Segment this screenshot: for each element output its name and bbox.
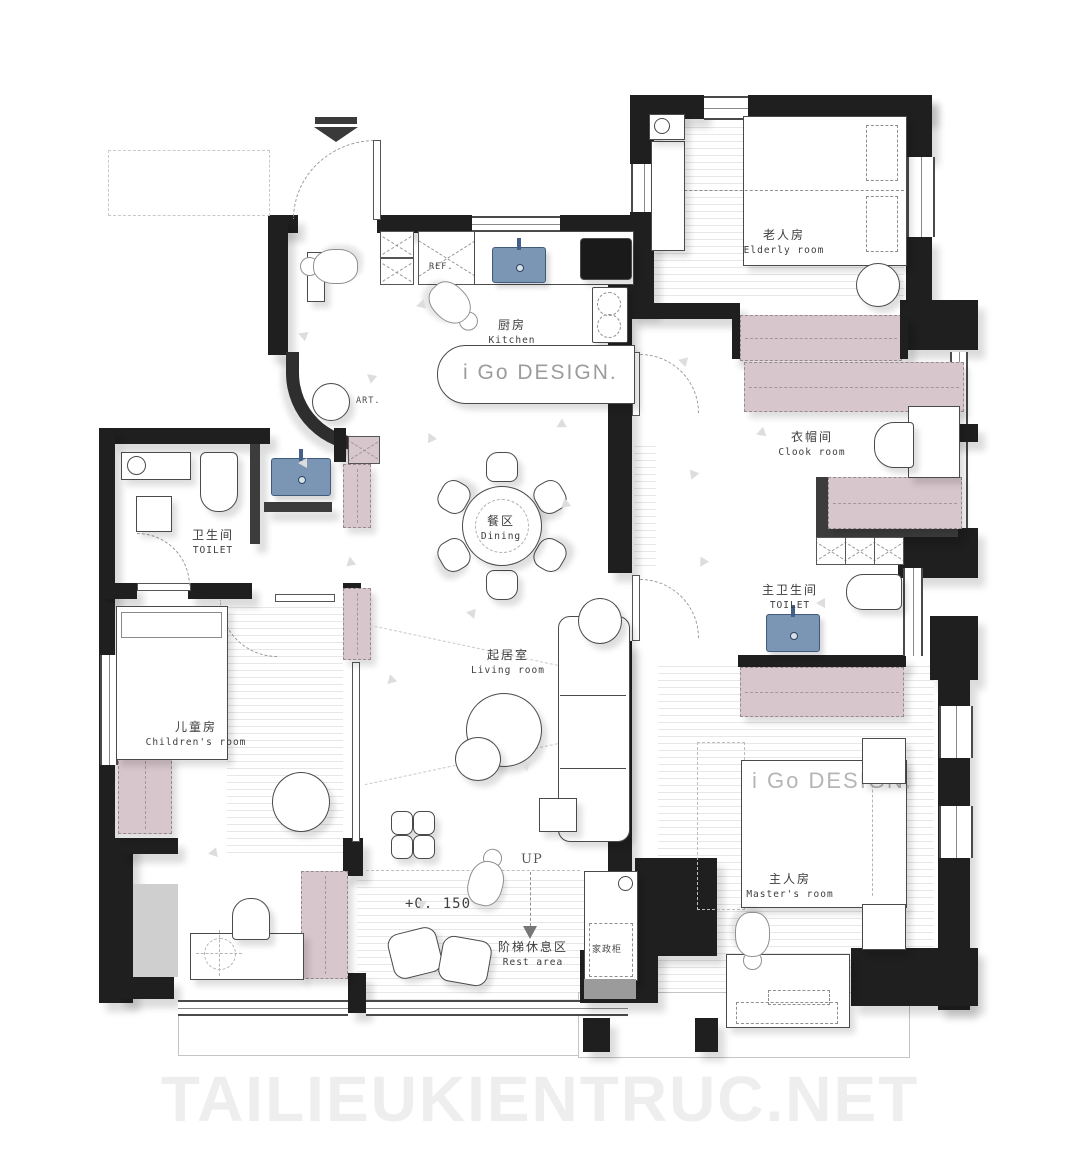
wall: [268, 215, 288, 355]
stove: [580, 238, 632, 280]
wall: [188, 583, 252, 599]
pouf: [413, 811, 435, 835]
kitchen-sink: [492, 247, 546, 283]
room-label-dining-en: Dining: [481, 531, 521, 542]
laundry-basket: [874, 537, 904, 565]
site-watermark: TAILIEUKIENTRUC.NET: [0, 1062, 1080, 1136]
room-label-dining: 餐区 Dining: [481, 512, 521, 542]
storage-nook: [133, 884, 178, 977]
room-label-living-en: Living room: [471, 665, 545, 676]
room-label-kitchen: 厨房 Kitchen: [488, 316, 535, 346]
room-label-elderly: 老人房 Elderly room: [744, 226, 825, 256]
room-label-kitchen-en: Kitchen: [488, 335, 535, 346]
wall: [738, 655, 906, 667]
cabinet: [343, 464, 371, 528]
wall: [348, 973, 366, 1013]
wall: [264, 502, 332, 512]
dresser-chair: [874, 422, 914, 468]
entry-arrow-bar: [315, 117, 357, 124]
beanbag-chair: [272, 772, 330, 832]
window: [472, 216, 560, 232]
room-label-kitchen-zh: 厨房: [488, 316, 535, 333]
wall: [906, 95, 932, 157]
door-swing-arc: [640, 579, 699, 638]
step: [584, 979, 636, 999]
wall: [583, 1018, 610, 1052]
laundry-basket: [816, 537, 846, 565]
room-label-master-toilet: 主卫生间 TOILET: [762, 581, 818, 611]
dining-chair: [486, 452, 518, 482]
door-leaf: [632, 575, 640, 641]
floor-mark: [519, 759, 531, 771]
floor-cushion: [436, 934, 493, 988]
room-label-living: 起居室 Living room: [471, 646, 545, 676]
desk-drawer: [768, 990, 830, 1005]
window: [178, 1000, 348, 1016]
room-label-master-toilet-en: TOILET: [762, 600, 818, 611]
door-swing-arc: [293, 140, 376, 219]
pouf: [391, 835, 413, 859]
up-label: UP: [521, 852, 543, 867]
floor-mark: [297, 329, 309, 341]
floor-mark: [345, 556, 356, 567]
floor-mark: [755, 427, 767, 439]
nightstand: [862, 738, 906, 784]
wall: [906, 237, 932, 307]
pouf: [413, 835, 435, 859]
desk-chair: [232, 898, 270, 940]
room-label-cloak-zh: 衣帽间: [778, 428, 845, 445]
wall: [99, 583, 137, 599]
bed-center-line: [654, 190, 904, 191]
room-label-master-zh: 主人房: [746, 870, 833, 887]
window: [939, 706, 973, 758]
master-toilet-bowl: [846, 574, 902, 610]
room-label-rest-zh: 阶梯休息区: [498, 938, 568, 955]
floor-mark: [554, 418, 567, 431]
coffee-table-small: [455, 737, 501, 781]
sofa-cushion-line: [560, 695, 626, 696]
tall-cabinet: [380, 258, 414, 285]
bedside-table: [856, 263, 900, 307]
side-table: [578, 598, 622, 644]
window: [704, 96, 748, 120]
cabinet: [348, 436, 380, 464]
master-sink: [766, 614, 820, 652]
window: [903, 568, 923, 656]
floor-mark: [677, 355, 688, 367]
wall: [816, 477, 828, 527]
floor-hall: [634, 440, 656, 570]
door-swing-arc: [137, 533, 190, 586]
balcony-slab-left: [178, 1010, 632, 1056]
room-label-master: 主人房 Master's room: [746, 870, 833, 900]
compass-mark: [204, 938, 236, 970]
person-figure: [300, 250, 358, 284]
wardrobe: [301, 871, 348, 979]
ac-knob: [654, 118, 670, 134]
room-label-living-zh: 起居室: [471, 646, 545, 663]
wardrobe: [744, 362, 964, 412]
burner: [597, 292, 621, 316]
wall: [930, 616, 978, 680]
floor-plan: REF. i Go DESIGN. ART.: [0, 0, 1080, 1153]
entry-arrow-icon: [314, 127, 358, 142]
wardrobe: [118, 756, 172, 834]
wall: [900, 300, 978, 350]
room-label-cloak-en: Clook room: [778, 447, 845, 458]
child-bed-pillow: [121, 612, 222, 638]
side-table-square: [539, 798, 577, 832]
refrigerator-label: REF.: [429, 262, 453, 272]
up-arrow-line: [530, 872, 531, 926]
pouf: [391, 811, 413, 835]
wall: [630, 303, 740, 319]
entry-platform-outline: [108, 150, 270, 216]
floor-mark: [424, 431, 437, 443]
window: [939, 806, 973, 858]
dresser-desk: [908, 406, 960, 478]
floor-mark: [686, 466, 699, 479]
pillow: [866, 125, 898, 181]
art-label: ART.: [356, 396, 380, 406]
wall: [118, 977, 174, 999]
wall: [113, 428, 270, 444]
person-figure: [736, 912, 770, 970]
door-swing-arc: [640, 354, 699, 413]
brand-label-kitchen: i Go DESIGN.: [463, 361, 618, 385]
burner: [597, 314, 621, 338]
tall-cabinet: [651, 141, 685, 251]
door-leaf: [373, 140, 381, 220]
window: [907, 157, 935, 237]
room-label-toilet-zh: 卫生间: [192, 526, 234, 543]
rug: [697, 742, 745, 910]
wall: [900, 315, 908, 359]
room-label-children: 儿童房 Children's room: [146, 718, 247, 748]
dining-chair: [486, 570, 518, 600]
housekeeping-cabinet-label: 家政柜: [592, 942, 622, 955]
floor-mark: [207, 847, 218, 858]
wall: [695, 1018, 718, 1052]
compass-mark-line: [196, 953, 242, 954]
desk-drawer: [736, 1002, 838, 1024]
floor-mark: [384, 674, 397, 687]
floor-mark: [465, 607, 476, 618]
room-label-elderly-en: Elderly room: [744, 245, 825, 256]
room-label-master-en: Master's room: [746, 889, 833, 900]
room-label-rest-en: Rest area: [498, 957, 568, 968]
room-label-children-zh: 儿童房: [146, 718, 247, 735]
sofa-cushion-line: [560, 768, 626, 769]
wardrobe: [828, 477, 962, 529]
floor-mark: [298, 458, 307, 468]
art-object: [312, 383, 350, 421]
wall: [120, 838, 178, 854]
wall: [851, 948, 978, 1006]
floor-mark: [696, 557, 709, 570]
room-label-cloak: 衣帽间 Clook room: [778, 428, 845, 458]
room-label-elderly-zh: 老人房: [744, 226, 825, 243]
toilet-bowl: [200, 452, 238, 512]
tall-cabinet: [380, 231, 414, 258]
cabinet-knob: [618, 876, 633, 891]
wall: [732, 315, 740, 359]
door-leaf: [275, 594, 335, 602]
wardrobe: [740, 315, 902, 361]
nightstand: [862, 904, 906, 950]
room-label-dining-zh: 餐区: [481, 512, 521, 529]
room-label-children-en: Children's room: [146, 737, 247, 748]
room-label-master-toilet-zh: 主卫生间: [762, 581, 818, 598]
room-label-toilet: 卫生间 TOILET: [192, 526, 234, 556]
sliding-partition: [352, 662, 360, 842]
room-label-toilet-en: TOILET: [192, 545, 234, 556]
laundry-basket: [845, 537, 875, 565]
basin: [127, 456, 146, 475]
wall: [334, 428, 346, 462]
wardrobe: [740, 667, 904, 717]
pillow: [866, 196, 898, 252]
shower-tray: [136, 496, 172, 532]
room-label-rest: 阶梯休息区 Rest area: [498, 938, 568, 968]
wall: [99, 428, 115, 603]
wall: [250, 444, 260, 544]
